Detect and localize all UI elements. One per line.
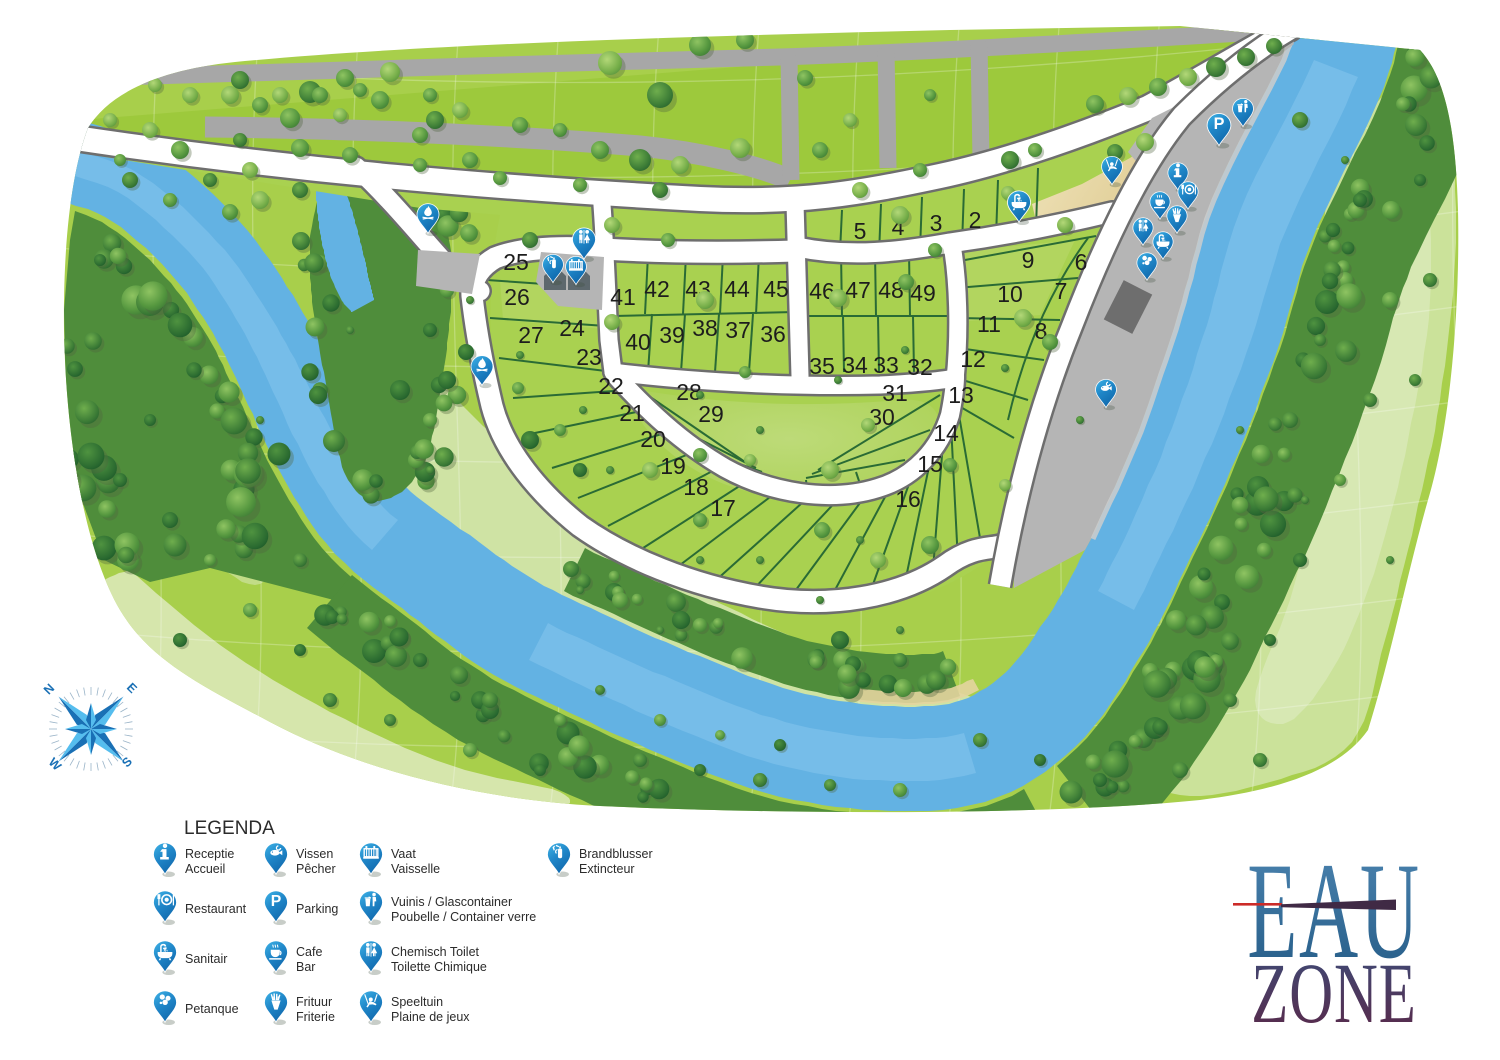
svg-text:33: 33 — [873, 352, 899, 378]
svg-text:S: S — [119, 754, 135, 770]
svg-text:18: 18 — [683, 474, 709, 500]
svg-text:29: 29 — [698, 401, 724, 427]
svg-text:39: 39 — [659, 322, 685, 348]
svg-text:ZONE: ZONE — [1251, 947, 1417, 1042]
svg-text:35: 35 — [809, 353, 835, 379]
svg-text:22: 22 — [598, 373, 624, 399]
svg-text:27: 27 — [518, 322, 544, 348]
svg-text:Vaisselle: Vaisselle — [391, 862, 440, 876]
svg-text:15: 15 — [917, 451, 943, 477]
svg-text:9: 9 — [1022, 247, 1035, 273]
svg-text:3: 3 — [930, 210, 943, 236]
svg-text:26: 26 — [504, 284, 530, 310]
svg-text:Restaurant: Restaurant — [185, 902, 247, 916]
svg-text:6: 6 — [1075, 249, 1088, 275]
svg-text:E: E — [124, 680, 140, 696]
svg-text:36: 36 — [760, 321, 786, 347]
svg-text:42: 42 — [644, 276, 670, 302]
svg-text:Vissen: Vissen — [296, 847, 333, 861]
svg-text:17: 17 — [710, 495, 736, 521]
svg-text:11: 11 — [977, 311, 1001, 337]
svg-text:Vaat: Vaat — [391, 847, 416, 861]
svg-text:Chemisch Toilet: Chemisch Toilet — [391, 945, 480, 959]
svg-text:44: 44 — [724, 276, 750, 302]
svg-text:Poubelle / Container verre: Poubelle / Container verre — [391, 910, 536, 924]
svg-text:40: 40 — [625, 329, 651, 355]
svg-text:23: 23 — [576, 344, 602, 370]
svg-text:N: N — [41, 681, 57, 697]
svg-text:7: 7 — [1055, 278, 1068, 304]
svg-text:Accueil: Accueil — [185, 862, 225, 876]
svg-text:Plaine de jeux: Plaine de jeux — [391, 1010, 470, 1024]
svg-text:21: 21 — [619, 400, 645, 426]
svg-text:25: 25 — [503, 249, 529, 275]
svg-text:38: 38 — [692, 315, 718, 341]
svg-text:Extincteur: Extincteur — [579, 862, 635, 876]
svg-text:Frituur: Frituur — [296, 995, 332, 1009]
svg-text:24: 24 — [559, 315, 585, 341]
svg-text:31: 31 — [882, 380, 908, 406]
svg-text:Toilette Chimique: Toilette Chimique — [391, 960, 487, 974]
svg-text:41: 41 — [610, 284, 636, 310]
svg-text:2: 2 — [969, 207, 982, 233]
svg-text:34: 34 — [842, 352, 868, 378]
svg-text:12: 12 — [960, 346, 986, 372]
svg-text:19: 19 — [660, 453, 686, 479]
svg-text:45: 45 — [763, 276, 789, 302]
svg-text:Cafe: Cafe — [296, 945, 322, 959]
svg-text:LEGENDA: LEGENDA — [184, 818, 275, 839]
svg-text:Friterie: Friterie — [296, 1010, 335, 1024]
svg-text:Sanitair: Sanitair — [185, 952, 227, 966]
svg-text:Receptie: Receptie — [185, 847, 234, 861]
svg-text:37: 37 — [725, 317, 751, 343]
svg-text:Brandblusser: Brandblusser — [579, 847, 653, 861]
svg-text:Parking: Parking — [296, 902, 338, 916]
svg-text:20: 20 — [640, 426, 666, 452]
svg-text:Vuinis / Glascontainer: Vuinis / Glascontainer — [391, 895, 512, 909]
svg-text:Speeltuin: Speeltuin — [391, 995, 443, 1009]
svg-text:Pêcher: Pêcher — [296, 862, 336, 876]
svg-text:Petanque: Petanque — [185, 1002, 239, 1016]
svg-text:Bar: Bar — [296, 960, 315, 974]
svg-text:16: 16 — [895, 486, 921, 512]
svg-text:13: 13 — [948, 382, 974, 408]
svg-text:10: 10 — [997, 281, 1023, 307]
svg-text:5: 5 — [854, 218, 867, 244]
svg-text:32: 32 — [907, 354, 933, 380]
svg-text:14: 14 — [933, 420, 959, 446]
